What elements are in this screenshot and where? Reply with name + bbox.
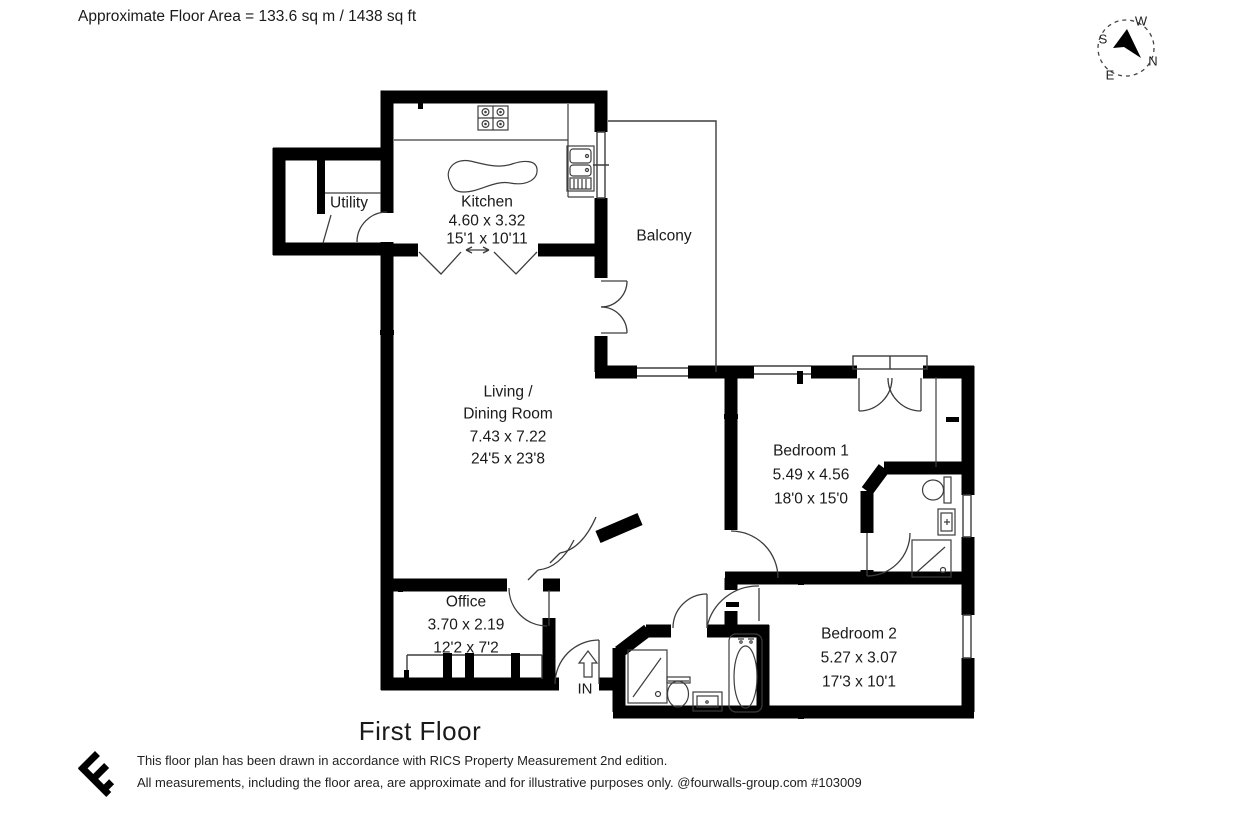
entrance-arrow-icon (579, 651, 597, 677)
balcony-french-doors (601, 281, 627, 333)
ensuite-door (867, 533, 910, 576)
living-label-line2: Dining Room (463, 406, 553, 422)
living-label-line1: Living / (483, 384, 532, 400)
kitchen-size-metric: 4.60 x 3.32 (449, 213, 526, 229)
office-bay-posts (443, 653, 520, 679)
office-label: Office (446, 594, 486, 610)
utility-label: Utility (330, 195, 368, 211)
office-size-imperial: 12'2 x 7'2 (433, 640, 498, 656)
floorplan-page: Approximate Floor Area = 133.6 sq m / 14… (0, 0, 1239, 813)
living-size-imperial: 24'5 x 23'8 (471, 451, 545, 467)
bedroom1-label: Bedroom 1 (773, 443, 849, 459)
floor-title: First Floor (359, 718, 482, 744)
kitchen-island (448, 161, 537, 192)
kitchen-folding-doors (419, 247, 537, 274)
juliet-balcony-rail (853, 356, 927, 369)
kitchen-window (593, 132, 609, 198)
kitchen-size-imperial: 15'1 x 10'11 (446, 231, 527, 247)
utility-door (323, 212, 387, 243)
living-double-doors (528, 517, 596, 580)
compass-east-label: E (1106, 68, 1115, 83)
kitchen-label: Kitchen (461, 194, 513, 210)
wall-structure (273, 97, 974, 712)
bedroom2-size-imperial: 17'3 x 10'1 (822, 674, 896, 690)
compass-needle (1113, 29, 1141, 58)
ensuite-basin-icon (938, 509, 955, 535)
kitchen-sink-icon (567, 146, 594, 191)
bedroom1-french-doors (859, 378, 921, 411)
bedroom2-label: Bedroom 2 (821, 626, 897, 642)
compass-west-label: W (1135, 14, 1147, 29)
fourwalls-logo (78, 751, 123, 796)
shower-icon (628, 650, 667, 703)
ensuite-shower-icon (912, 540, 951, 577)
office-bay-window (407, 655, 542, 679)
bedroom1-size-imperial: 18'0 x 15'0 (774, 491, 848, 507)
bedroom2-size-metric: 5.27 x 3.07 (821, 650, 898, 666)
balcony-label: Balcony (636, 228, 691, 244)
living-window (637, 368, 688, 376)
bedroom1-size-metric: 5.49 x 4.56 (773, 467, 850, 483)
office-size-metric: 3.70 x 2.19 (428, 617, 505, 633)
bedroom1-door (731, 531, 778, 578)
bathroom-fixtures (628, 634, 762, 712)
living-size-metric: 7.43 x 7.22 (470, 429, 547, 445)
ensuite-fixtures (912, 377, 955, 577)
floorplan-drawing (0, 0, 1239, 813)
balcony-outline (608, 121, 716, 372)
bathroom-door (673, 594, 707, 628)
compass-south-label: S (1099, 32, 1108, 47)
entrance-in-label: IN (578, 682, 593, 697)
footer-disclaimer-line2: All measurements, including the floor ar… (137, 775, 862, 790)
toilet-icon (667, 677, 690, 707)
hob-icon (478, 106, 508, 130)
ensuite-window (963, 495, 971, 537)
floor-area-note: Approximate Floor Area = 133.6 sq m / 14… (78, 8, 416, 26)
bedroom2-window (963, 615, 971, 658)
footer-disclaimer-line1: This floor plan has been drawn in accord… (137, 753, 667, 768)
ensuite-toilet-icon (923, 477, 952, 503)
compass-north-label: N (1148, 54, 1157, 69)
